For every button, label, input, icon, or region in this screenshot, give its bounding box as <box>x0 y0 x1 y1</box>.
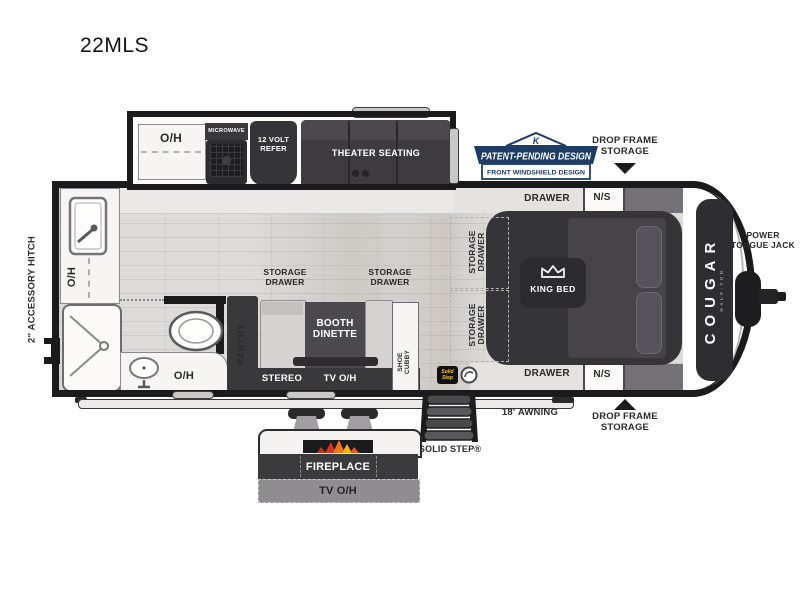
stereo-label: STEREO <box>258 374 306 385</box>
wall-left <box>52 181 59 397</box>
counter-divider-dashed <box>88 258 90 298</box>
awning-label: 18' AWNING <box>488 408 572 419</box>
fireplace-label: FIREPLACE <box>258 461 418 474</box>
kitchen-sink <box>68 196 108 258</box>
shower-lines <box>64 306 116 386</box>
drop-frame-storage-top-label: DROP FRAME STORAGE <box>583 136 667 158</box>
crown-icon <box>540 265 566 279</box>
drop-frame-storage-bottom-label: DROP FRAME STORAGE <box>583 412 667 434</box>
bed-storage-drawer-label-2: STORAGE DRAWER <box>466 293 488 357</box>
shoe-cubby-label: SHOE CUBBY <box>395 349 413 375</box>
shoe-cubby <box>392 302 419 392</box>
nightstand-bottom-label: N/S <box>583 369 621 380</box>
bathroom-overhead-label: O/H <box>162 370 206 383</box>
king-bed-label: KING BED <box>520 285 586 295</box>
bed-band-top-dark <box>621 188 685 213</box>
pantry-label: PANTRY <box>235 304 249 384</box>
accessory-hitch-label: 2" ACCESSORY HITCH <box>27 225 40 355</box>
accessory-hitch-notch <box>44 344 51 357</box>
toilet <box>166 308 226 354</box>
cougar-brand: COUGAR HALF-TON <box>694 200 734 380</box>
bed-storage-drawer-label-1: STORAGE DRAWER <box>466 220 488 284</box>
cougar-brand-name: COUGAR <box>703 236 720 345</box>
tongue-jack-tip <box>777 292 786 301</box>
wall-bottom <box>52 390 690 397</box>
patent-badge: K PATENT-PENDING DESIGN FRONT WINDSHIELD… <box>472 131 600 183</box>
exterior-handle-1 <box>172 391 214 399</box>
arrow-down-icon <box>614 163 636 174</box>
tv-overhead-label: TV O/H <box>316 374 364 385</box>
badge-line2: FRONT WINDSHIELD DESIGN <box>487 171 585 177</box>
storage-drawer-right-label: STORAGE DRAWER <box>360 268 420 287</box>
solid-step-logo-text: Solid Step <box>439 369 457 381</box>
storage-drawer-left-label: STORAGE DRAWER <box>255 268 315 287</box>
drawer-top-label: DRAWER <box>514 193 580 204</box>
bathroom-sink <box>126 356 166 390</box>
slide-handle-right <box>449 128 459 184</box>
galley-counter-strip <box>118 188 453 214</box>
exterior-handle-2 <box>286 391 336 399</box>
dinette-bench-left-back <box>262 302 303 315</box>
entry-steps <box>420 392 478 442</box>
floorplan-canvas: 22MLS O/H O/H PANTRY DRAWER N <box>0 0 800 600</box>
booth-dinette-label: BOOTH DINETTE <box>303 318 367 341</box>
slide-out-border <box>127 111 456 190</box>
outdoor-tv-label: TV O/H <box>258 485 418 498</box>
solid-step-label: SOLID STEP® <box>411 444 489 454</box>
flame-icon <box>303 440 373 453</box>
power-tongue-jack-label: POWER TONGUE JACK <box>731 231 795 250</box>
solid-step-logo-badge: Solid Step <box>437 366 458 384</box>
bed-pillow-1 <box>636 226 662 288</box>
awning-right-tip <box>552 397 574 403</box>
floorplan-title: 22MLS <box>80 34 200 58</box>
nightstand-top-label: N/S <box>583 192 621 203</box>
king-bed-badge: KING BED <box>520 258 586 308</box>
bed-pillow-2 <box>636 292 662 354</box>
drawer-bottom-label: DRAWER <box>514 368 580 379</box>
kitchen-sink-overhead-label: O/H <box>65 257 79 297</box>
lippert-circle-logo <box>460 366 478 384</box>
tongue-jack-body <box>735 271 761 327</box>
bed-band-bottom-dark <box>621 364 685 390</box>
cougar-brand-edition: HALF-TON <box>720 269 725 312</box>
dinette-table-bar <box>293 357 378 366</box>
tongue-jack-arm <box>759 289 778 304</box>
arrow-up-icon <box>614 399 636 410</box>
bathroom-door-dotted <box>120 299 164 301</box>
badge-line1: PATENT-PENDING DESIGN <box>481 152 592 163</box>
